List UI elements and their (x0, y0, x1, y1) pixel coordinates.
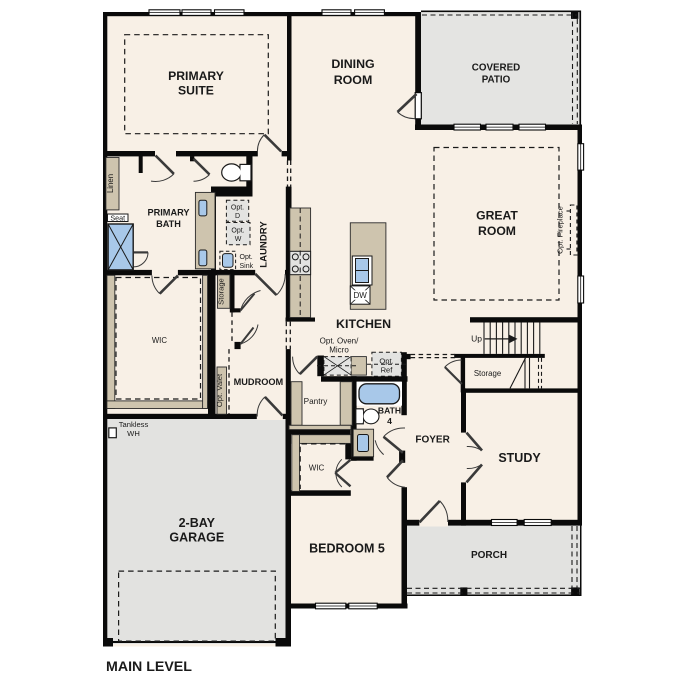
svg-text:DW: DW (354, 291, 368, 300)
svg-text:MUDROOM: MUDROOM (234, 377, 284, 387)
svg-text:PRIMARY: PRIMARY (147, 208, 189, 218)
svg-text:W: W (235, 236, 242, 243)
svg-text:Opt. Valet: Opt. Valet (215, 373, 224, 407)
svg-text:Up: Up (471, 334, 482, 344)
svg-text:Tankless: Tankless (119, 420, 149, 429)
svg-text:Opt. Fireplace: Opt. Fireplace (556, 206, 565, 254)
svg-text:STUDY: STUDY (498, 451, 541, 465)
svg-text:LAUNDRY: LAUNDRY (259, 221, 270, 268)
svg-text:BATH: BATH (156, 219, 181, 229)
svg-text:COVERED: COVERED (472, 63, 520, 74)
svg-text:Storage: Storage (217, 278, 226, 305)
svg-text:Opt.: Opt. (379, 357, 393, 366)
svg-text:WH: WH (127, 429, 140, 438)
svg-text:Micro: Micro (329, 346, 349, 355)
svg-text:WIC: WIC (309, 464, 325, 473)
svg-text:PORCH: PORCH (471, 550, 507, 561)
svg-text:Opt.: Opt. (231, 205, 244, 212)
svg-text:4: 4 (387, 416, 392, 426)
svg-text:KITCHEN: KITCHEN (336, 317, 391, 331)
svg-text:Pantry: Pantry (304, 397, 329, 406)
svg-text:Ref: Ref (381, 366, 394, 375)
svg-text:Opt.: Opt. (240, 254, 253, 261)
svg-text:Opt.: Opt. (231, 228, 244, 235)
svg-text:GREAT: GREAT (476, 209, 518, 223)
svg-text:BATH: BATH (378, 406, 401, 416)
svg-text:Seat: Seat (110, 214, 125, 223)
svg-text:2-BAY: 2-BAY (179, 516, 216, 530)
svg-text:ROOM: ROOM (334, 73, 373, 87)
svg-text:BEDROOM 5: BEDROOM 5 (309, 542, 385, 556)
svg-text:Storage: Storage (474, 369, 501, 378)
svg-text:ROOM: ROOM (478, 224, 516, 238)
svg-text:FOYER: FOYER (415, 435, 450, 446)
svg-text:DINING: DINING (331, 57, 374, 71)
svg-text:SUITE: SUITE (178, 84, 214, 98)
svg-text:Sink: Sink (240, 263, 254, 270)
svg-text:PRIMARY: PRIMARY (168, 69, 224, 83)
svg-text:D: D (235, 213, 240, 220)
svg-text:PATIO: PATIO (482, 74, 511, 85)
svg-text:WIC: WIC (152, 336, 168, 345)
svg-text:GARAGE: GARAGE (169, 531, 224, 545)
svg-text:Opt. Oven/: Opt. Oven/ (320, 337, 359, 346)
svg-text:MAIN LEVEL: MAIN LEVEL (106, 659, 192, 675)
svg-text:Linen: Linen (106, 174, 115, 193)
